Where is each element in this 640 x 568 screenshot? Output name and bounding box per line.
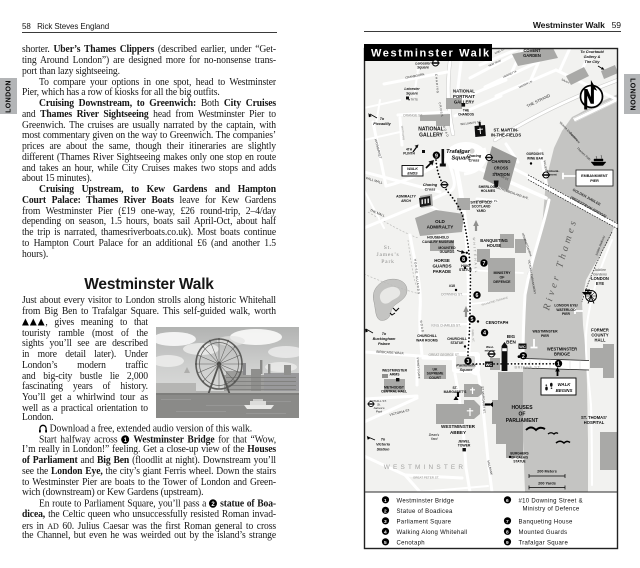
svg-text:BEGINS: BEGINS xyxy=(556,388,573,393)
svg-text:CHURCHILL: CHURCHILL xyxy=(417,334,437,338)
svg-text:KING CHARLES ST.: KING CHARLES ST. xyxy=(431,324,460,328)
svg-text:EMBANKMENT: EMBANKMENT xyxy=(581,174,608,178)
svg-text:Palace: Palace xyxy=(378,342,390,346)
svg-text:OF: OF xyxy=(519,412,526,418)
svg-text:Gardens: Gardens xyxy=(593,272,607,276)
svg-text:HALL: HALL xyxy=(595,338,606,343)
svg-text:Park: Park xyxy=(376,410,383,414)
svg-text:ment: ment xyxy=(549,172,556,176)
svg-text:WAR ROOMS: WAR ROOMS xyxy=(416,338,438,342)
svg-text:EYE: EYE xyxy=(596,281,604,286)
svg-text:MINISTRY: MINISTRY xyxy=(493,271,511,275)
svg-text:200 Meters: 200 Meters xyxy=(537,470,557,474)
svg-text:To: To xyxy=(381,438,386,442)
svg-text:Charing: Charing xyxy=(467,154,482,158)
svg-text:BRIDGE: BRIDGE xyxy=(554,352,570,357)
svg-text:DOWNING ST.: DOWNING ST. xyxy=(441,293,462,297)
svg-text:4: 4 xyxy=(384,529,387,535)
svg-text:HOUSES: HOUSES xyxy=(511,405,533,411)
svg-text:■ TKTS: ■ TKTS xyxy=(408,98,418,102)
svg-text:ENDS: ENDS xyxy=(407,172,418,176)
svg-text:STATUE: STATUE xyxy=(513,460,525,464)
svg-text:minster: minster xyxy=(485,348,497,352)
svg-text:To: To xyxy=(380,117,385,121)
svg-text:CENTRAL HALL: CENTRAL HALL xyxy=(381,390,407,394)
svg-text:HORSE: HORSE xyxy=(434,258,450,263)
svg-text:HOLMES: HOLMES xyxy=(481,189,496,193)
svg-text:Leicester: Leicester xyxy=(404,87,420,91)
svg-text:8: 8 xyxy=(462,257,465,263)
svg-text:PORTRAIT: PORTRAIT xyxy=(453,94,475,99)
svg-text:WESTMINSTER: WESTMINSTER xyxy=(384,464,466,471)
svg-text:COURT: COURT xyxy=(429,376,442,380)
svg-text:Charing: Charing xyxy=(423,183,438,187)
svg-text:WALK: WALK xyxy=(558,382,572,387)
svg-text:Westminster Bridge: Westminster Bridge xyxy=(397,498,455,504)
svg-text:GREAT PETER ST.: GREAT PETER ST. xyxy=(413,476,439,480)
svg-text:STATUE: STATUE xyxy=(450,341,464,345)
svg-text:1: 1 xyxy=(557,362,560,368)
svg-text:ARCH: ARCH xyxy=(401,199,411,203)
svg-text:Parliament Square: Parliament Square xyxy=(397,519,452,525)
svg-text:2: 2 xyxy=(522,354,525,360)
svg-text:WC: WC xyxy=(519,344,526,349)
svg-text:GARDEN: GARDEN xyxy=(523,53,541,58)
svg-text:Buckingham: Buckingham xyxy=(373,337,396,341)
svg-text:BRIDGE ST.: BRIDGE ST. xyxy=(514,366,541,370)
svg-text:Mounted Guards: Mounted Guards xyxy=(519,530,568,536)
svg-text:Square: Square xyxy=(417,66,429,70)
svg-text:Gallery &: Gallery & xyxy=(584,55,601,59)
svg-text:STATUE: STATUE xyxy=(459,268,473,272)
svg-text:PIER: PIER xyxy=(541,334,549,338)
svg-text:Jubilee: Jubilee xyxy=(594,268,606,272)
svg-text:Park: Park xyxy=(381,259,394,265)
svg-text:#10: #10 xyxy=(449,284,455,288)
svg-text:OLD: OLD xyxy=(435,219,445,224)
svg-text:9: 9 xyxy=(506,540,509,546)
svg-text:ABBEY: ABBEY xyxy=(450,430,466,435)
svg-text:2: 2 xyxy=(384,508,387,514)
svg-text:Cenotaph: Cenotaph xyxy=(397,540,425,546)
svg-text:Yard: Yard xyxy=(431,437,438,441)
svg-text:CHARING: CHARING xyxy=(491,159,510,164)
svg-text:PARL. ST.: PARL. ST. xyxy=(471,330,476,343)
svg-text:GALLERY: GALLERY xyxy=(454,100,475,105)
svg-text:NATIONAL: NATIONAL xyxy=(453,89,475,94)
svg-text:6: 6 xyxy=(506,498,509,504)
svg-text:Westminster Walk: Westminster Walk xyxy=(371,48,491,60)
svg-text:To Courtauld: To Courtauld xyxy=(580,50,604,54)
svg-text:CAVALRY MUSEUM: CAVALRY MUSEUM xyxy=(422,240,454,244)
svg-text:OF: OF xyxy=(500,275,506,279)
svg-text:Station: Station xyxy=(377,448,391,452)
svg-text:GALLERY: GALLERY xyxy=(419,133,443,139)
svg-text:GREAT GEORGE ST.: GREAT GEORGE ST. xyxy=(428,353,459,357)
svg-text:Square: Square xyxy=(460,368,473,372)
svg-text:Statue of Boadicea: Statue of Boadicea xyxy=(397,509,453,515)
svg-text:CENOTAPH: CENOTAPH xyxy=(486,320,509,325)
svg-text:PIER: PIER xyxy=(562,312,570,316)
svg-text:5: 5 xyxy=(471,317,474,323)
svg-text:GUARDS: GUARDS xyxy=(432,264,451,269)
svg-text:PIER: PIER xyxy=(590,179,599,183)
svg-text:1: 1 xyxy=(384,498,387,504)
svg-text:To: To xyxy=(382,332,387,336)
svg-text:The City: The City xyxy=(585,60,601,64)
svg-text:#10 Downing Street &: #10 Downing Street & xyxy=(519,498,583,504)
svg-text:PARADE: PARADE xyxy=(433,269,451,274)
svg-text:Banqueting House: Banqueting House xyxy=(519,519,574,525)
svg-text:Square: Square xyxy=(406,91,418,95)
svg-text:James’s: James’s xyxy=(376,252,399,258)
svg-text:TOTHILL ST.: TOTHILL ST. xyxy=(369,399,387,403)
svg-text:GUARDS: GUARDS xyxy=(440,250,455,254)
svg-text:200 Yards: 200 Yards xyxy=(538,482,556,486)
svg-text:BIG: BIG xyxy=(507,334,516,339)
svg-text:St.: St. xyxy=(384,245,392,251)
svg-text:Piccadilly: Piccadilly xyxy=(373,122,391,126)
svg-text:4: 4 xyxy=(483,331,486,337)
svg-text:6: 6 xyxy=(476,293,479,299)
svg-text:Trafalgar Square: Trafalgar Square xyxy=(519,540,569,546)
svg-text:WHITEHALL PL.: WHITEHALL PL. xyxy=(476,199,499,203)
svg-text:Cross: Cross xyxy=(469,158,480,162)
svg-text:Victoria: Victoria xyxy=(376,443,390,447)
svg-text:PARLIAMENT: PARLIAMENT xyxy=(506,418,538,424)
svg-text:ORANGE ST.: ORANGE ST. xyxy=(403,114,423,118)
svg-text:MARGARET’S: MARGARET’S xyxy=(444,390,468,394)
svg-text:5: 5 xyxy=(384,540,387,546)
svg-text:7: 7 xyxy=(483,261,486,267)
svg-text:BEN: BEN xyxy=(506,340,516,345)
svg-text:CHANDOS: CHANDOS xyxy=(458,113,474,117)
svg-text:Ministry of Defence: Ministry of Defence xyxy=(523,507,580,513)
svg-text:WC: WC xyxy=(486,362,493,367)
svg-text:WALK: WALK xyxy=(407,167,418,171)
svg-text:8: 8 xyxy=(506,529,509,535)
svg-text:DEFENCE: DEFENCE xyxy=(493,280,511,284)
svg-text:3: 3 xyxy=(467,359,470,365)
svg-text:Cross: Cross xyxy=(425,187,436,191)
svg-text:IN-THE-FIELDS: IN-THE-FIELDS xyxy=(491,133,521,138)
svg-text:CROSS: CROSS xyxy=(494,166,509,171)
svg-text:PLINTH: PLINTH xyxy=(403,152,415,156)
svg-text:ARMS: ARMS xyxy=(390,373,401,377)
svg-text:WESTMINSTER: WESTMINSTER xyxy=(441,424,476,429)
svg-text:ADMIRALTY: ADMIRALTY xyxy=(427,225,454,230)
svg-text:YARD: YARD xyxy=(476,209,486,213)
svg-text:3: 3 xyxy=(384,519,387,525)
svg-text:TOWER: TOWER xyxy=(458,444,471,448)
svg-text:HOUSE: HOUSE xyxy=(487,243,502,248)
svg-text:HOSPITAL: HOSPITAL xyxy=(584,420,605,425)
svg-text:7: 7 xyxy=(506,519,509,525)
svg-text:WINE BAR: WINE BAR xyxy=(527,156,544,160)
svg-text:9: 9 xyxy=(435,153,438,159)
svg-text:Walking Along Whitehall: Walking Along Whitehall xyxy=(397,530,468,536)
